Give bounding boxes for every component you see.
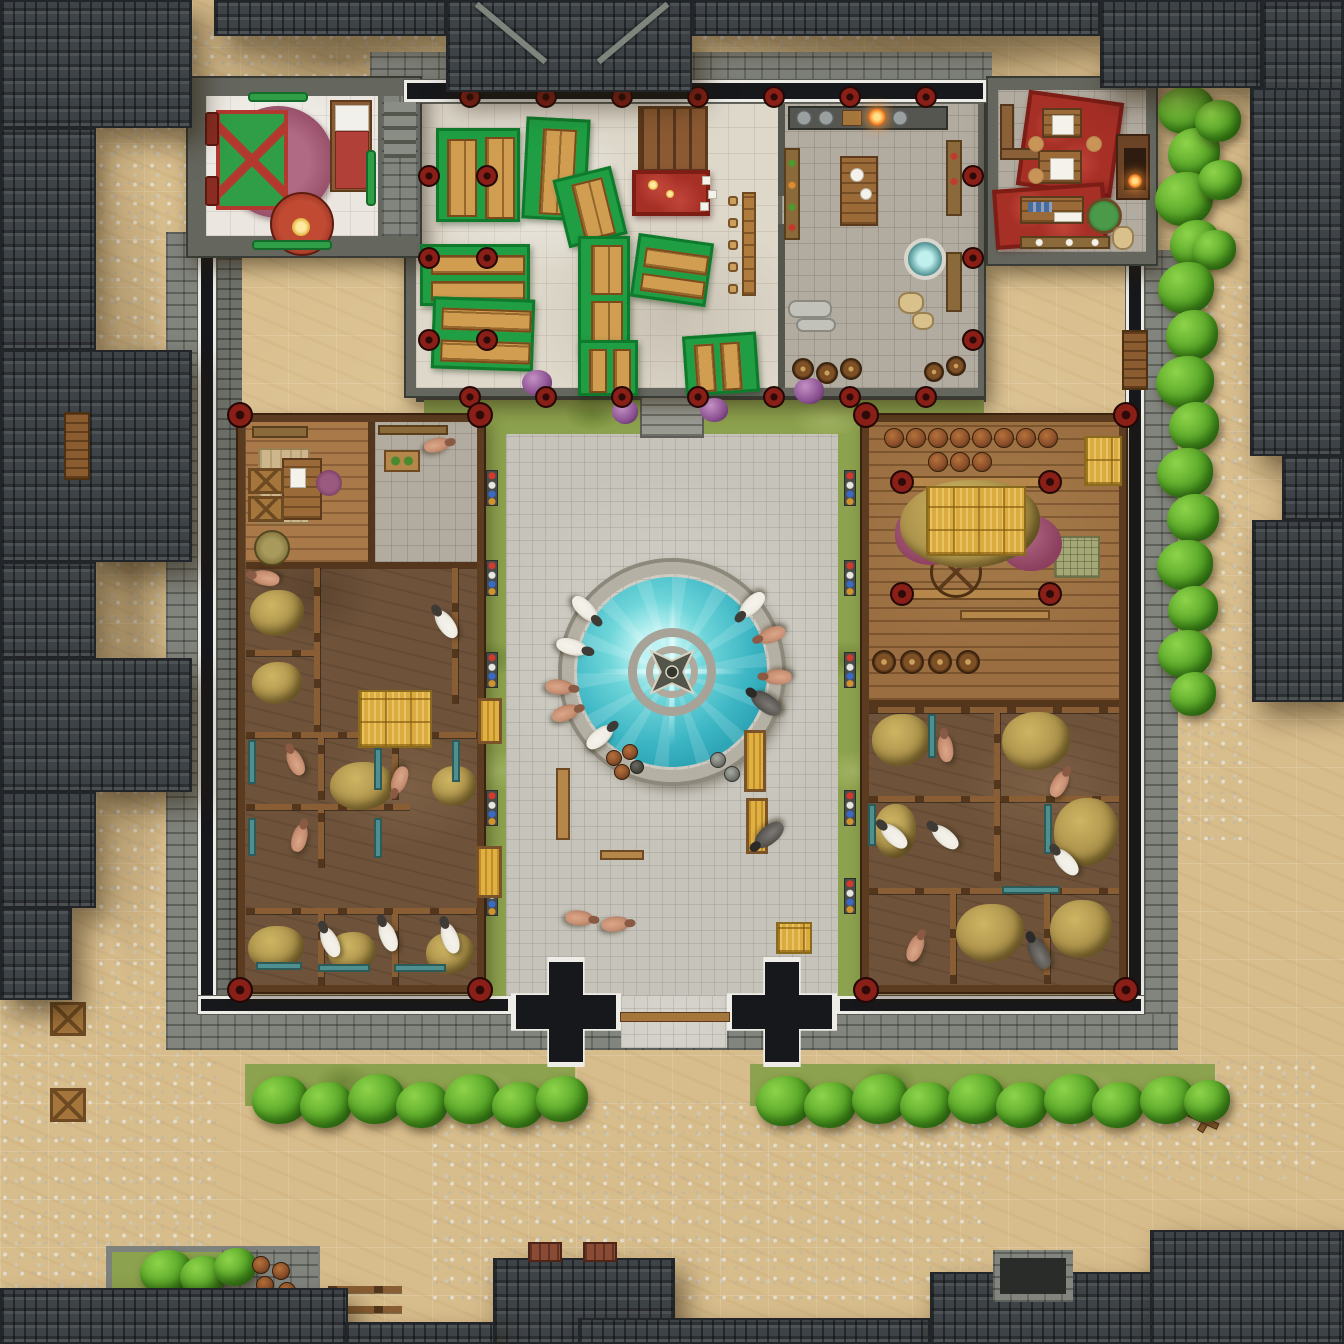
- plaza-bench: [556, 768, 570, 840]
- rooftop: [1250, 88, 1344, 456]
- hedge-grass-west: [245, 1064, 575, 1106]
- flour-sack: [912, 312, 934, 330]
- roof-ridge: [597, 2, 670, 64]
- rooftop: [0, 0, 192, 128]
- dining-table: [447, 139, 477, 217]
- song-card: [702, 176, 711, 185]
- rooftop: [0, 1288, 348, 1344]
- dining-mat: [431, 296, 535, 372]
- compound-wall-left: [198, 248, 216, 1014]
- fireplace: [1116, 134, 1150, 200]
- pen-fence: [318, 738, 324, 800]
- hearth-fire: [1128, 174, 1142, 188]
- grain-bag: [796, 318, 836, 332]
- dining-table: [643, 247, 709, 276]
- bar-stool: [728, 218, 738, 228]
- street-door: [64, 412, 90, 480]
- compound-wall-bottom-west: [198, 996, 511, 1014]
- song-card: [700, 202, 709, 211]
- round-basket: [254, 530, 290, 566]
- study-chair: [1086, 136, 1102, 152]
- song-card: [708, 190, 717, 199]
- bar-stool: [728, 284, 738, 294]
- pen-fence: [1000, 796, 1119, 802]
- cooking-pan: [892, 110, 908, 126]
- bar-counter: [742, 192, 756, 296]
- study-desk: [1042, 108, 1082, 138]
- wall-skirt: [1144, 250, 1178, 1050]
- candelabra: [648, 180, 658, 190]
- wall-shelf: [946, 252, 962, 312]
- pen-fence: [1044, 894, 1050, 984]
- rooftop: [0, 908, 72, 1000]
- pen-fence: [318, 914, 324, 986]
- woven-mat: [1054, 536, 1100, 578]
- gold-dish: [292, 218, 310, 236]
- pen-fence: [950, 894, 956, 984]
- rooftop: [0, 350, 192, 562]
- porch-mat: [682, 331, 760, 396]
- dining-table: [431, 255, 525, 275]
- pen-fence: [869, 888, 1119, 894]
- hallway-stairs: [384, 102, 416, 158]
- dining-table: [571, 177, 616, 241]
- rooftop: [578, 1318, 930, 1344]
- veg-shelf: [784, 148, 800, 240]
- dining-mat: [630, 233, 714, 307]
- plaza-steps: [640, 396, 704, 438]
- office-chair: [316, 470, 342, 496]
- kitchen-wall: [778, 224, 785, 388]
- scroll: [1052, 115, 1074, 135]
- rooftop: [1100, 0, 1262, 88]
- pen-fence: [246, 804, 410, 810]
- porch-table: [720, 342, 743, 391]
- dough: [850, 168, 864, 182]
- pen-fence: [246, 908, 477, 914]
- porch-table: [694, 343, 717, 392]
- stove-fire: [868, 108, 886, 126]
- gate-arch-opening: [1000, 1258, 1066, 1294]
- stage-platform: [638, 106, 708, 172]
- pen-fence: [392, 914, 398, 986]
- writing-desk: [1020, 196, 1084, 224]
- gate-path: [621, 996, 727, 1048]
- pen-fence: [314, 568, 320, 734]
- porch-table: [613, 349, 631, 393]
- cutting-board: [842, 110, 862, 126]
- armchair: [205, 112, 219, 146]
- wall-shelf: [946, 140, 962, 216]
- dining-table: [591, 245, 623, 295]
- rooftop: [692, 0, 1100, 36]
- porch-mat: [578, 340, 638, 396]
- office-shelf: [252, 426, 308, 438]
- chimney: [528, 1242, 562, 1262]
- rooftop: [0, 562, 96, 658]
- grain-bag: [788, 300, 832, 318]
- mail-sack: [1112, 226, 1134, 250]
- east-wall-gate: [1122, 330, 1148, 390]
- scroll: [1054, 212, 1082, 222]
- green-bench: [248, 92, 308, 102]
- rooftop: [0, 658, 192, 792]
- prep-table: [840, 156, 878, 226]
- stable-workshop-floor: [375, 422, 477, 562]
- hedge-grass-east: [750, 1064, 1215, 1106]
- flour-sack: [898, 292, 924, 314]
- study-chair: [1028, 136, 1044, 152]
- rooftop: [446, 0, 692, 92]
- scroll: [1050, 158, 1074, 180]
- dining-mat: [578, 236, 630, 356]
- candelabra: [666, 190, 674, 198]
- office-desk: [282, 458, 322, 520]
- books: [1028, 202, 1052, 212]
- desk-paper: [290, 468, 306, 488]
- pen-fence: [246, 732, 477, 738]
- scroll-shelf: [1020, 236, 1110, 249]
- bookshelf: [1000, 104, 1014, 152]
- study-chair: [1028, 168, 1044, 184]
- wheelbarrow: [930, 546, 982, 598]
- dining-table: [485, 137, 515, 219]
- pen-fence: [392, 738, 398, 800]
- workshop-shelf: [378, 425, 448, 435]
- dough: [860, 188, 872, 200]
- bed-pillow: [335, 105, 369, 131]
- rooftop: [1252, 520, 1344, 702]
- wash-basin: [904, 238, 946, 280]
- dining-table: [440, 340, 531, 365]
- pen-fence: [452, 568, 458, 704]
- dining-mat: [436, 128, 520, 222]
- bar-stool: [728, 196, 738, 206]
- workshop-bench: [384, 450, 420, 472]
- courtyard-grass-east: [838, 434, 860, 996]
- pen-fence: [869, 796, 995, 802]
- green-bench: [252, 240, 332, 250]
- battle-map: [0, 0, 1344, 1344]
- stable-bench: [898, 476, 1050, 488]
- courtyard-grass-west: [484, 434, 506, 996]
- bar-stool: [728, 240, 738, 250]
- porch-table: [589, 349, 607, 393]
- dining-table: [640, 273, 706, 300]
- green-bench: [366, 150, 376, 206]
- stable-bench: [960, 610, 1050, 620]
- bed-blanket: [335, 131, 369, 189]
- chimney: [583, 1242, 617, 1262]
- roof-ridge: [475, 2, 548, 64]
- street-gate-arch: [993, 1250, 1073, 1302]
- rooftop: [0, 792, 96, 908]
- cooking-pan: [818, 110, 834, 126]
- stable-interior-wall: [869, 700, 1119, 707]
- plaza-bench: [600, 850, 644, 860]
- rooftop: [1282, 456, 1344, 520]
- stable-interior-wall: [368, 422, 375, 562]
- pen-fence: [318, 810, 324, 868]
- rooftop: [0, 128, 96, 350]
- rooftop: [214, 0, 446, 36]
- rooftop: [1150, 1230, 1344, 1344]
- compound-wall-bottom-east: [837, 996, 1144, 1014]
- dining-table: [441, 308, 532, 333]
- pen-fence: [246, 650, 314, 656]
- rooftop: [345, 1322, 495, 1344]
- study-desk: [1038, 150, 1082, 184]
- bar-stool: [728, 262, 738, 272]
- gate-threshold: [620, 1012, 730, 1022]
- cooking-pan: [796, 110, 812, 126]
- game-table: [216, 110, 288, 210]
- armchair: [205, 176, 219, 206]
